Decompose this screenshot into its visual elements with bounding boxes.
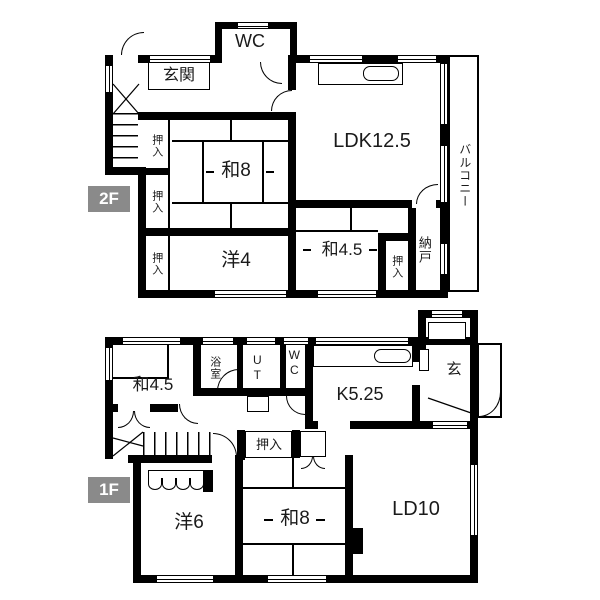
- stairs-turn-lines: [113, 430, 143, 457]
- window: [123, 337, 180, 345]
- room-label-wa8-1f: 和8: [266, 505, 324, 533]
- tatami-line: [243, 543, 347, 545]
- wall: [150, 404, 178, 412]
- wall: [292, 430, 300, 458]
- kitchen-sink: [374, 349, 411, 363]
- washer-space: [247, 396, 269, 412]
- wall: [418, 310, 426, 350]
- window: [268, 575, 326, 583]
- room-label-oshiire-1f: 押入: [247, 435, 291, 455]
- tatami-line: [243, 487, 347, 489]
- wall: [193, 345, 201, 392]
- window: [203, 337, 233, 345]
- wall: [193, 388, 313, 396]
- curtain-scallop: [148, 478, 162, 490]
- floor-plan-1f: 和4.5 浴室 UT WC K5.25 玄 押入 洋6 和8 LD10 1F: [0, 0, 600, 600]
- stairs: [143, 432, 211, 456]
- room-label-genkan-1f: 玄: [442, 358, 466, 382]
- wall: [350, 421, 420, 429]
- closet-box: [300, 431, 326, 457]
- room-label-wa45-1f: 和4.5: [116, 373, 190, 397]
- door-arc: [301, 456, 313, 469]
- wall: [305, 337, 313, 429]
- window: [432, 310, 462, 318]
- door-arc: [313, 456, 325, 469]
- tatami-line: [292, 545, 294, 575]
- floor-badge-1f: 1F: [88, 477, 130, 503]
- wall: [345, 455, 353, 577]
- bay-alcove: [428, 322, 466, 340]
- room-label-bath: 浴室: [206, 347, 222, 389]
- floorplan-canvas: WC 玄関 LDK12.5 和8 洋4 和4.5 押入 押入 押入 押入 納戸 …: [0, 0, 600, 600]
- door-arc: [213, 433, 237, 457]
- curtain-scallop: [176, 478, 190, 490]
- door-arc: [118, 411, 134, 428]
- pillar: [345, 528, 363, 554]
- room-label-yo6: 洋6: [160, 509, 218, 537]
- room-label-wc-1f: WC: [286, 344, 302, 382]
- door-arc: [286, 396, 305, 415]
- curtain-scallop: [190, 478, 204, 490]
- genkan-step-line: [428, 396, 474, 416]
- curtain-scallop: [162, 478, 176, 490]
- wall: [305, 421, 318, 429]
- room-label-ut: UT: [249, 349, 265, 387]
- wall: [412, 385, 420, 429]
- tatami-line: [292, 457, 294, 487]
- pillar: [203, 470, 213, 492]
- room-label-ld: LD10: [378, 495, 454, 523]
- wall: [133, 455, 141, 583]
- window: [470, 465, 478, 535]
- window: [316, 337, 408, 345]
- room-label-kitchen: K5.25: [320, 381, 400, 407]
- shoe-cabinet: [419, 349, 429, 371]
- door-arc: [179, 404, 198, 424]
- window: [105, 348, 113, 380]
- window: [433, 421, 467, 429]
- door-arc: [134, 411, 150, 428]
- window: [247, 337, 275, 345]
- window: [157, 575, 213, 583]
- wall: [235, 455, 243, 577]
